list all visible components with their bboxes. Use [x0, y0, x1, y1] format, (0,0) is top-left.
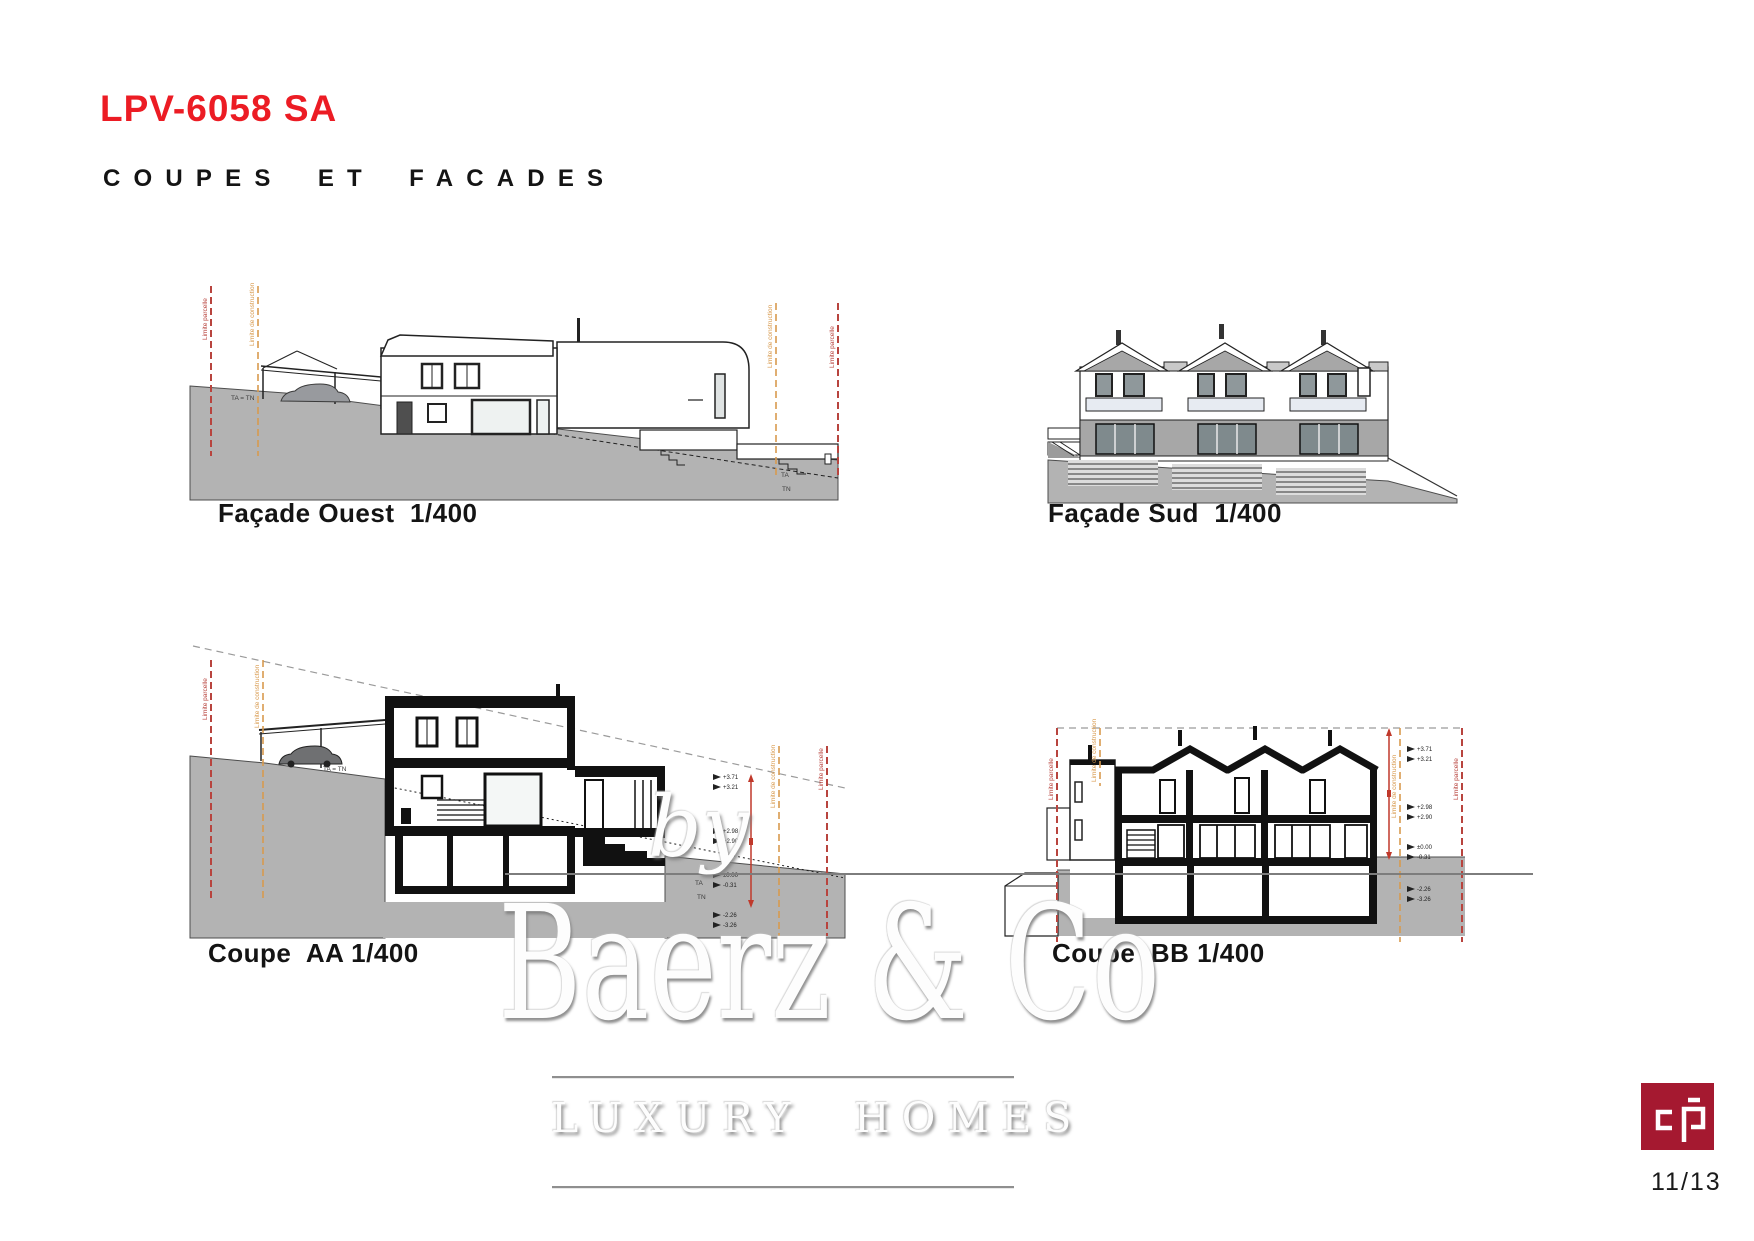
- window: [428, 404, 446, 422]
- facade-ouest-drawing: Limite parcelle Limite de construction L…: [185, 278, 860, 503]
- window: [1075, 820, 1082, 840]
- caption-coupe-bb: Coupe BB 1/400: [1052, 938, 1265, 969]
- caption-facade-ouest: Façade Ouest 1/400: [218, 498, 478, 529]
- floor-slab: [385, 758, 575, 768]
- watermark-divider-top: [552, 1076, 1014, 1078]
- svg-text:-3.26: -3.26: [1417, 897, 1431, 903]
- facade-sud-houses: [1076, 324, 1388, 461]
- ground-slab: [385, 826, 575, 836]
- svg-text:±0.00: ±0.00: [1417, 845, 1433, 851]
- interior-door: [1235, 778, 1249, 813]
- coupe-aa-section: [385, 684, 665, 894]
- svg-text:+3.71: +3.71: [723, 775, 739, 781]
- roof-slab: [385, 696, 575, 708]
- svg-text:+2.90: +2.90: [723, 839, 739, 845]
- caption-coupe-aa: Coupe AA 1/400: [208, 938, 419, 969]
- chimney: [1253, 726, 1257, 740]
- ta-tn-label: TA = TN: [323, 766, 347, 773]
- basement-slab: [1115, 916, 1377, 924]
- coupe-bb-drawing: Limite parcelle Limite de construction L…: [995, 690, 1475, 980]
- limit-parcel-label: Limite parcelle: [818, 748, 825, 790]
- chimney: [1219, 324, 1224, 339]
- coupe-aa-drawing: Limite parcelle Limite de construction L…: [185, 640, 860, 940]
- svg-text:+2.98: +2.98: [723, 829, 739, 835]
- limit-construction-label: Limite de construction: [767, 304, 774, 368]
- stairs: [437, 800, 485, 820]
- annex-volume: [1005, 873, 1058, 936]
- watermark-divider-bottom: [552, 1186, 1014, 1188]
- glazing: [537, 400, 549, 434]
- glazed-opening: [485, 774, 541, 826]
- car-silhouette: [279, 746, 342, 768]
- page-subtitle: COUPES ET FACADES: [103, 165, 616, 193]
- exterior-stairs: [583, 837, 665, 866]
- floor-slab: [1115, 815, 1377, 823]
- watermark-tagline: LUXURY HOMES: [551, 1094, 1083, 1142]
- svg-text:+3.71: +3.71: [1417, 747, 1433, 753]
- glazed-door: [585, 780, 603, 830]
- limit-parcel-label: Limite parcelle: [1048, 758, 1055, 800]
- entry-door: [397, 402, 412, 434]
- chimney: [1328, 730, 1332, 746]
- limit-construction-label: Limite de construction: [249, 282, 256, 346]
- svg-text:+2.90: +2.90: [1417, 815, 1433, 821]
- level-reference-line: [505, 873, 1533, 875]
- limit-construction-label: Limite de construction: [770, 744, 777, 808]
- svg-text:-2.26: -2.26: [1417, 887, 1431, 893]
- car-silhouette: [281, 384, 350, 402]
- chimney: [1321, 330, 1326, 345]
- window: [422, 776, 442, 798]
- svg-text:+2.98: +2.98: [1417, 805, 1433, 811]
- interior-door: [1160, 780, 1175, 813]
- svg-text:-2.26: -2.26: [723, 913, 737, 919]
- facade-sud-drawing: [1040, 290, 1465, 505]
- roof-band: [381, 335, 553, 356]
- wing-roof-slab: [575, 766, 665, 777]
- glazing: [715, 374, 725, 418]
- interior-door: [1310, 780, 1325, 813]
- ta-tn-label: TA = TN: [231, 395, 255, 402]
- picture-window: [472, 400, 530, 434]
- svg-text:+3.21: +3.21: [723, 785, 739, 791]
- balconies: [1086, 398, 1366, 411]
- facade-sud-left-walls: [1048, 428, 1082, 458]
- cp-monogram-logo-icon: [1641, 1083, 1714, 1150]
- chimney: [1178, 730, 1182, 746]
- limit-construction-label: Limite de construction: [1091, 718, 1098, 782]
- basement-slab: [395, 886, 575, 894]
- page-title: LPV-6058 SA: [100, 88, 337, 130]
- svg-text:-0.31: -0.31: [723, 883, 737, 889]
- limit-parcel-label: Limite parcelle: [202, 298, 209, 340]
- limit-parcel-label: Limite parcelle: [202, 678, 209, 720]
- tn-label: TN: [697, 894, 706, 901]
- limit-parcel-label: Limite parcelle: [829, 326, 836, 368]
- caption-facade-sud: Façade Sud 1/400: [1048, 498, 1282, 529]
- page-number: 11/13: [1651, 1168, 1722, 1197]
- svg-text:-0.31: -0.31: [1417, 855, 1431, 861]
- svg-text:-3.26: -3.26: [723, 923, 737, 929]
- brochure-page: LPV-6058 SA COUPES ET FACADES: [0, 0, 1754, 1241]
- window: [1075, 782, 1082, 802]
- svg-text:+3.21: +3.21: [1417, 757, 1433, 763]
- roof-antenna: [577, 318, 580, 342]
- ta-label: TA: [695, 880, 703, 887]
- ta-label: TA: [781, 472, 789, 479]
- limit-construction-label: Limite de construction: [254, 664, 261, 728]
- limit-construction-label: Limite de construction: [1391, 754, 1398, 818]
- chimney: [1116, 330, 1121, 345]
- roof-line: [1115, 749, 1377, 770]
- limit-parcel-label: Limite parcelle: [1453, 758, 1460, 800]
- ground-slab: [1115, 858, 1377, 866]
- coupe-bb-section: [1115, 726, 1377, 924]
- tn-label: TN: [782, 486, 791, 493]
- facade-ouest-house: [381, 318, 749, 434]
